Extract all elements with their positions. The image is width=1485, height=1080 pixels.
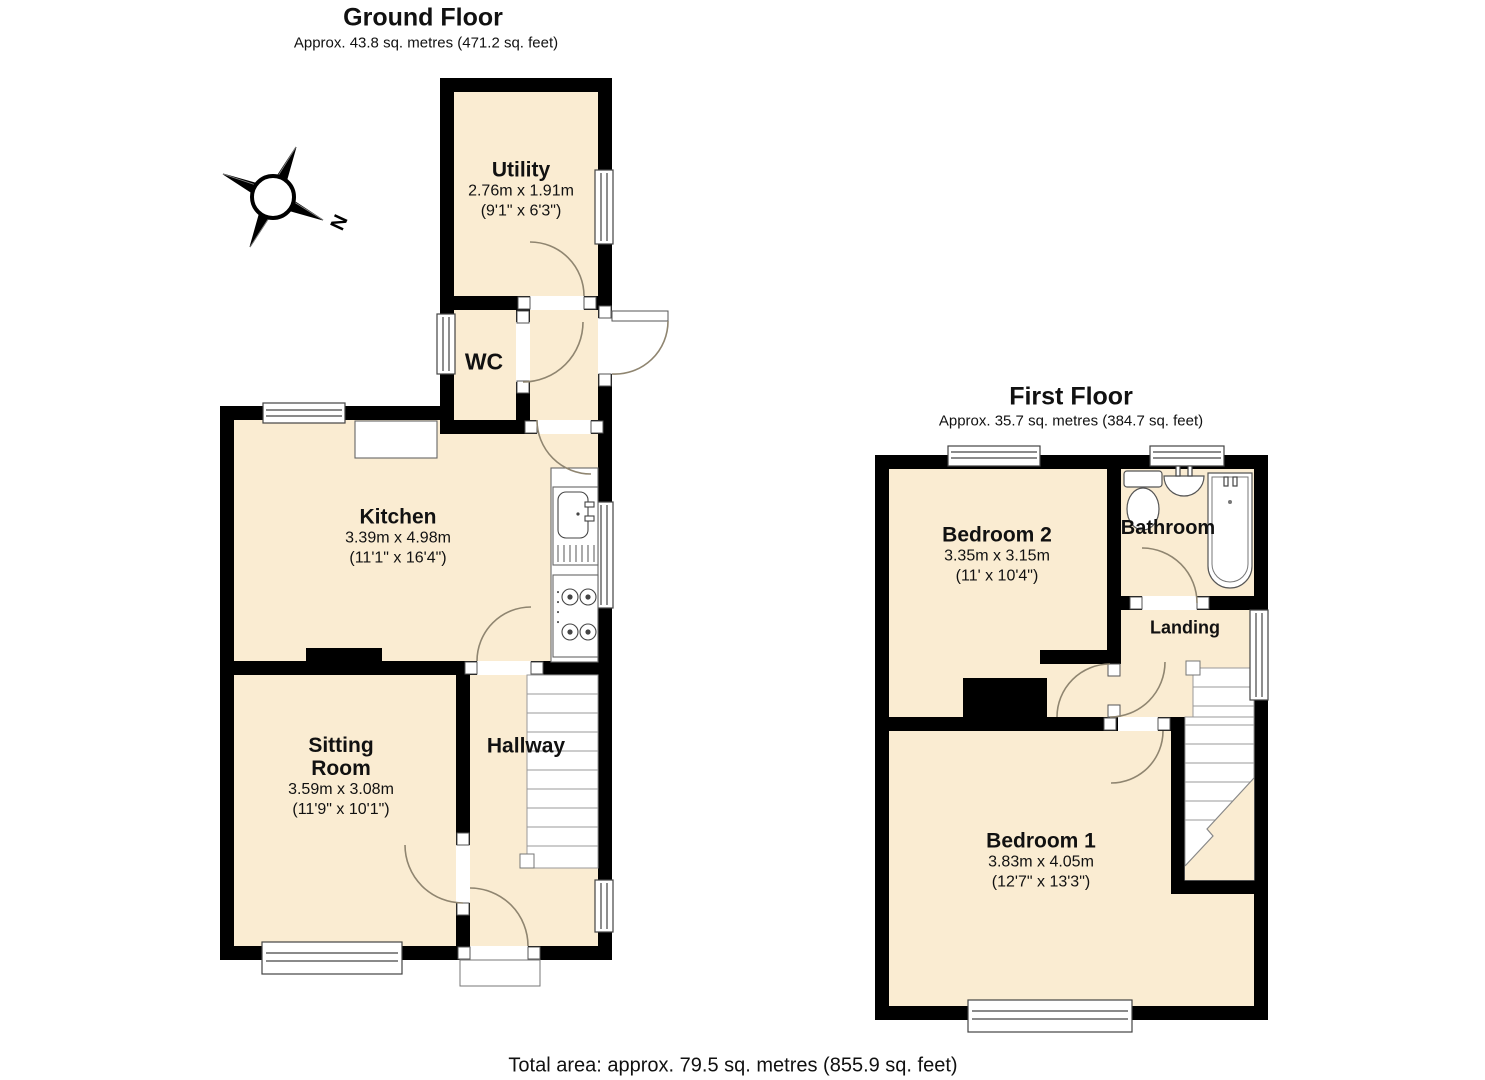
kitchen-unit <box>355 421 437 458</box>
room-size-metric: 2.76m x 1.91m <box>468 182 574 202</box>
bedroom2-window <box>948 446 1040 466</box>
hallway-label: Hallway <box>487 734 565 757</box>
room-size-imperial: (11'1" x 16'4") <box>345 549 451 569</box>
chimney-breast <box>306 648 382 675</box>
compass-icon: N <box>223 147 351 247</box>
wall <box>1040 650 1107 664</box>
kitchen-window <box>263 403 345 423</box>
sitting-room-label: Sitting Room 3.59m x 3.08m (11'9" x 10'1… <box>276 734 406 820</box>
toilet-cistern <box>1124 471 1162 487</box>
room-size-metric: 3.35m x 3.15m <box>942 547 1052 567</box>
hob-icon <box>553 575 598 657</box>
door-arc <box>612 321 668 374</box>
bathroom-label: Bathroom <box>1121 517 1215 539</box>
back-door-leaf <box>612 311 668 321</box>
bedroom2-label: Bedroom 2 3.35m x 3.15m (11' x 10'4") <box>942 523 1052 586</box>
room-size-imperial: (11'9" x 10'1") <box>276 800 406 820</box>
stairs-first <box>1185 661 1254 880</box>
utility-window <box>595 170 613 244</box>
ground-floor-subtitle: Approx. 43.8 sq. metres (471.2 sq. feet) <box>294 35 558 52</box>
landing-window <box>1250 610 1268 700</box>
utility-room-label: Utility 2.76m x 1.91m (9'1" x 6'3") <box>468 158 574 221</box>
wall <box>1171 717 1185 894</box>
hallway-window <box>595 880 613 932</box>
kitchen-room-label: Kitchen 3.39m x 4.98m (11'1" x 16'4") <box>345 505 451 568</box>
room-name: Kitchen <box>345 505 451 528</box>
wall <box>1107 469 1121 610</box>
ground-floor-title: Ground Floor <box>343 4 503 33</box>
stairs-ground <box>520 675 598 868</box>
floorplan-page: N <box>0 0 1485 1080</box>
porch-step <box>460 960 540 986</box>
total-area-label: Total area: approx. 79.5 sq. metres (855… <box>508 1055 957 1078</box>
room-name: Sitting Room <box>276 734 406 780</box>
wall <box>1171 880 1254 894</box>
wall <box>220 661 612 675</box>
bedroom1-label: Bedroom 1 3.83m x 4.05m (12'7" x 13'3") <box>986 829 1096 892</box>
room-name: Bedroom 2 <box>942 523 1052 546</box>
sitting-room-window <box>262 942 402 974</box>
bedroom1-window <box>968 1000 1132 1032</box>
first-floor-subtitle: Approx. 35.7 sq. metres (384.7 sq. feet) <box>939 413 1203 430</box>
sink-icon <box>558 492 588 538</box>
room-size-imperial: (11' x 10'4") <box>942 567 1052 587</box>
compass-north-label: N <box>325 211 351 233</box>
floorplan-drawing: N <box>0 0 1485 1080</box>
room-size-imperial: (12'7" x 13'3") <box>986 873 1096 893</box>
room-size-metric: 3.59m x 3.08m <box>276 780 406 800</box>
room-size-metric: 3.83m x 4.05m <box>986 853 1096 873</box>
room-name: Bedroom 1 <box>986 829 1096 852</box>
wc-room-label: WC <box>465 349 503 374</box>
wall <box>1107 610 1121 664</box>
wc-window <box>437 314 455 374</box>
room-size-metric: 3.39m x 4.98m <box>345 529 451 549</box>
bathroom-window <box>1150 446 1224 466</box>
newel-post <box>1186 661 1200 675</box>
room-size-imperial: (9'1" x 6'3") <box>468 202 574 222</box>
newel-post <box>520 854 534 868</box>
room-name: Utility <box>468 158 574 181</box>
first-floor-title: First Floor <box>1009 383 1133 412</box>
landing-label: Landing <box>1150 618 1220 639</box>
